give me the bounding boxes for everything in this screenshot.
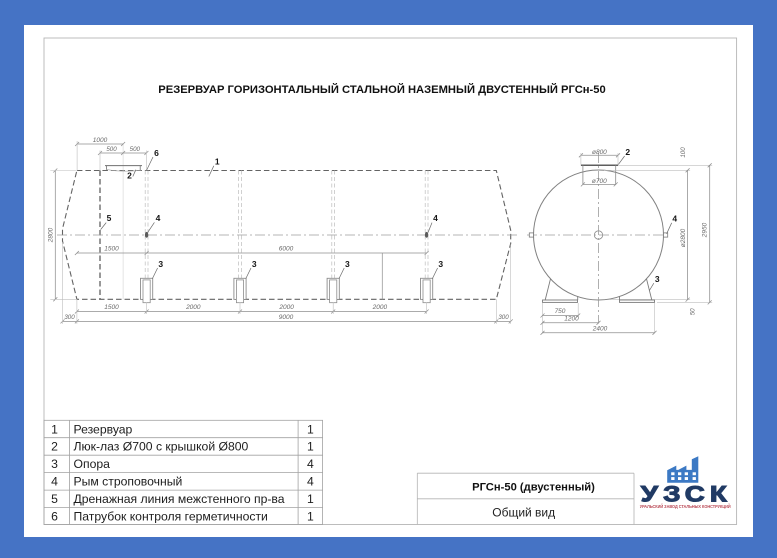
svg-text:Патрубок контроля герметичност: Патрубок контроля герметичности [74,510,268,524]
svg-text:1: 1 [307,510,314,524]
svg-text:2000: 2000 [185,304,201,311]
svg-text:6000: 6000 [279,246,294,253]
svg-text:1000: 1000 [93,137,108,144]
svg-text:4: 4 [433,213,438,223]
svg-text:750: 750 [555,308,566,315]
svg-text:Люк-лаз Ø700 с крышкой Ø800: Люк-лаз Ø700 с крышкой Ø800 [74,440,249,454]
svg-text:3: 3 [345,259,350,269]
svg-text:3: 3 [655,274,660,284]
svg-text:6: 6 [51,510,58,524]
svg-text:1: 1 [215,157,220,167]
svg-text:4: 4 [156,213,161,223]
svg-text:300: 300 [498,314,509,321]
svg-text:5: 5 [107,213,112,223]
svg-text:1: 1 [307,440,314,454]
svg-text:2950: 2950 [702,222,709,238]
svg-text:1: 1 [307,422,314,436]
svg-text:РЕЗЕРВУАР ГОРИЗОНТАЛЬНЫЙ СТАЛЬ: РЕЗЕРВУАР ГОРИЗОНТАЛЬНЫЙ СТАЛЬНОЙ НАЗЕМН… [158,83,605,96]
svg-text:4: 4 [672,214,677,224]
svg-text:3: 3 [252,259,257,269]
svg-text:РГСн-50 (двустенный): РГСн-50 (двустенный) [472,481,595,493]
svg-text:ø2800: ø2800 [680,228,687,247]
svg-text:3: 3 [51,457,58,471]
svg-text:УЗСК: УЗСК [641,482,732,507]
svg-text:1: 1 [51,422,58,436]
svg-text:Опора: Опора [74,457,111,471]
svg-text:4: 4 [51,475,58,489]
svg-text:500: 500 [106,146,117,153]
svg-text:5: 5 [51,492,58,506]
svg-text:1500: 1500 [104,304,119,311]
svg-text:3: 3 [438,259,443,269]
svg-text:50: 50 [689,308,696,315]
svg-text:6: 6 [154,148,159,158]
svg-text:Дренажная линия межстенного пр: Дренажная линия межстенного пр-ва [74,492,285,506]
svg-text:Общий вид: Общий вид [492,505,555,519]
svg-text:4: 4 [307,475,314,489]
svg-text:ø700: ø700 [592,178,607,185]
svg-text:2: 2 [127,171,132,181]
svg-text:2000: 2000 [278,304,294,311]
svg-text:2800: 2800 [48,227,55,243]
svg-text:Резервуар: Резервуар [74,422,133,436]
svg-text:100: 100 [680,147,687,158]
svg-text:500: 500 [130,146,141,153]
svg-text:9000: 9000 [279,314,294,321]
svg-text:1500: 1500 [104,246,119,253]
svg-text:2: 2 [625,147,630,157]
svg-text:300: 300 [64,314,75,321]
svg-text:2: 2 [51,440,58,454]
svg-text:2000: 2000 [372,304,388,311]
svg-text:1200: 1200 [564,316,579,323]
svg-text:ø800: ø800 [592,149,607,156]
svg-text:3: 3 [158,259,163,269]
svg-text:Рым строповочный: Рым строповочный [74,475,183,489]
svg-text:2400: 2400 [592,326,608,333]
svg-text:1: 1 [307,492,314,506]
svg-text:4: 4 [307,457,314,471]
